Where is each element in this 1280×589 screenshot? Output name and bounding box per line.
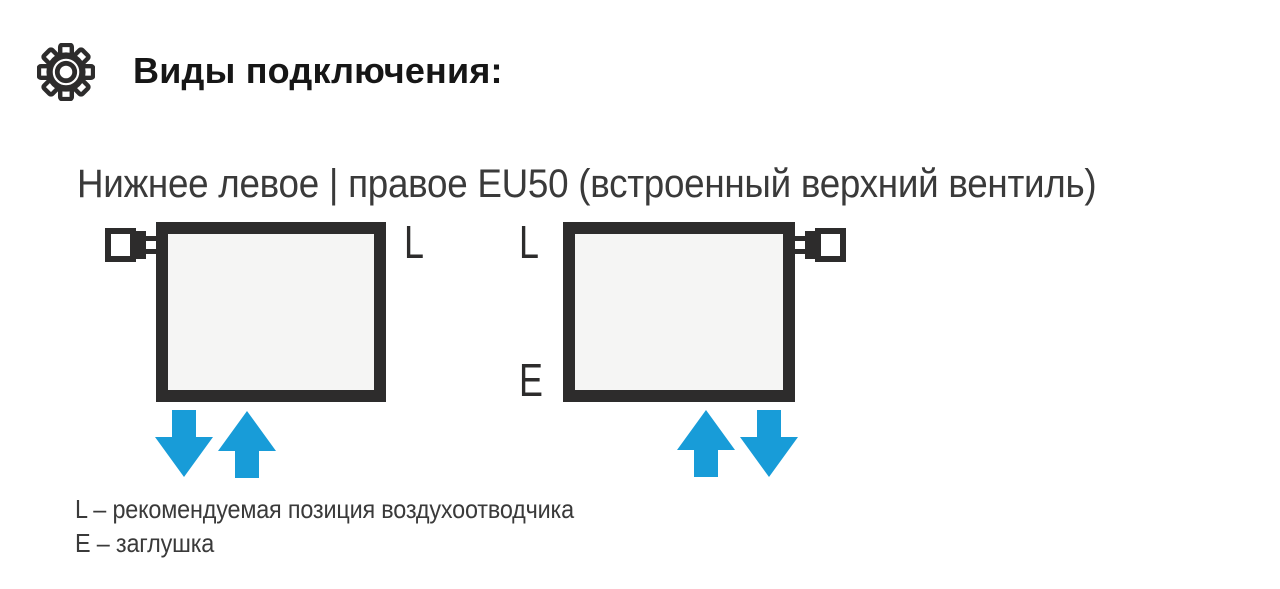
radiator-left bbox=[156, 222, 386, 402]
legend-line-air-vent: L – рекомендуемая позиция воздухоотводчи… bbox=[75, 492, 574, 526]
flow-up-arrow bbox=[677, 410, 735, 477]
valve-body-left bbox=[136, 231, 146, 259]
connection-types-diagram: Виды подключения: Нижнее левое | правое … bbox=[0, 0, 1280, 589]
valve-fitting-right bbox=[794, 236, 805, 254]
page-title: Виды подключения: bbox=[133, 50, 503, 92]
valve-fitting-left bbox=[146, 236, 157, 254]
valve-body-right bbox=[805, 231, 815, 259]
flow-down-arrow bbox=[155, 410, 213, 477]
air-vent-label-right: L bbox=[519, 217, 539, 268]
legend: L – рекомендуемая позиция воздухоотводчи… bbox=[75, 492, 574, 560]
radiator-right bbox=[563, 222, 795, 402]
flow-up-arrow bbox=[218, 411, 276, 478]
valve-handle-left bbox=[105, 228, 136, 262]
air-vent-label-left: L bbox=[404, 217, 424, 268]
connection-subtitle: Нижнее левое | правое EU50 (встроенный в… bbox=[77, 162, 1096, 207]
valve-handle-right bbox=[815, 228, 846, 262]
legend-line-plug: E – заглушка bbox=[75, 526, 574, 560]
gear-icon bbox=[37, 43, 95, 101]
plug-label-right: E bbox=[519, 355, 543, 406]
flow-down-arrow bbox=[740, 410, 798, 477]
